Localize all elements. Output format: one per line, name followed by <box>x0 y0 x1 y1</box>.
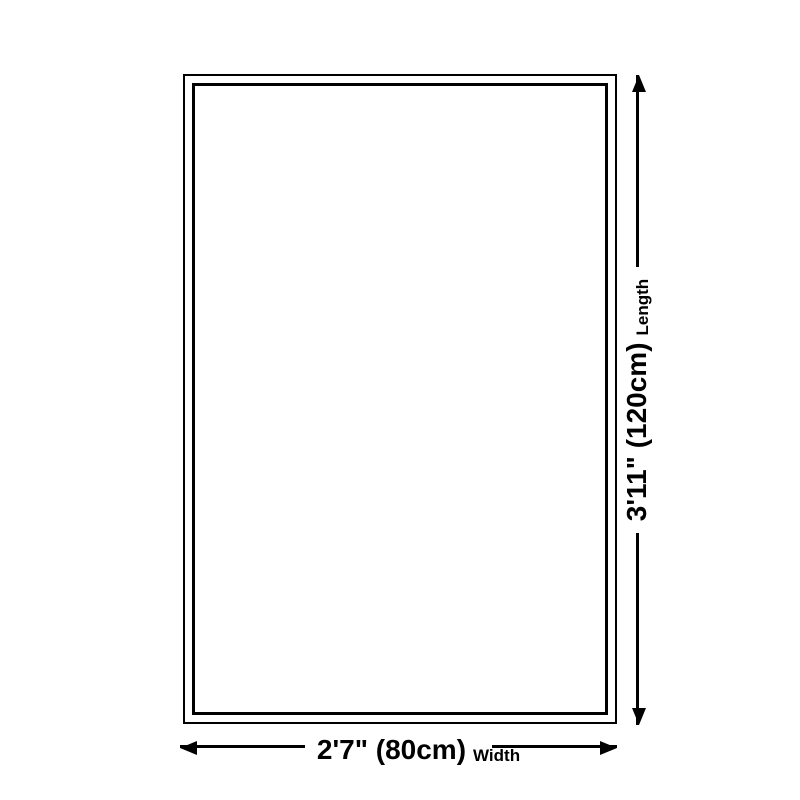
length-dimension: 3'11" (120cm) Length <box>622 75 652 725</box>
length-caption: Length <box>634 279 651 336</box>
width-label: 2'7" (80cm) Width <box>317 736 480 764</box>
width-caption: Width <box>473 747 520 764</box>
arrow-up-icon <box>632 75 646 92</box>
width-arrow-line-left <box>180 745 305 748</box>
rug-outline-outer <box>183 74 617 724</box>
width-arrow-line-right <box>492 745 617 748</box>
width-dimension: 2'7" (80cm) Width <box>180 731 617 761</box>
length-label: 3'11" (120cm) Length <box>623 279 651 521</box>
length-arrow-line-lower <box>636 533 639 725</box>
arrow-down-icon <box>632 708 646 725</box>
rug-outline-inner <box>192 83 608 715</box>
length-arrow-line-upper <box>636 75 639 267</box>
rug-size-diagram: 3'11" (120cm) Length 2'7" (80cm) Width <box>0 0 800 800</box>
arrow-right-icon <box>600 741 617 755</box>
width-value: 2'7" (80cm) <box>317 736 466 764</box>
arrow-left-icon <box>180 741 197 755</box>
length-value: 3'11" (120cm) <box>623 342 651 521</box>
